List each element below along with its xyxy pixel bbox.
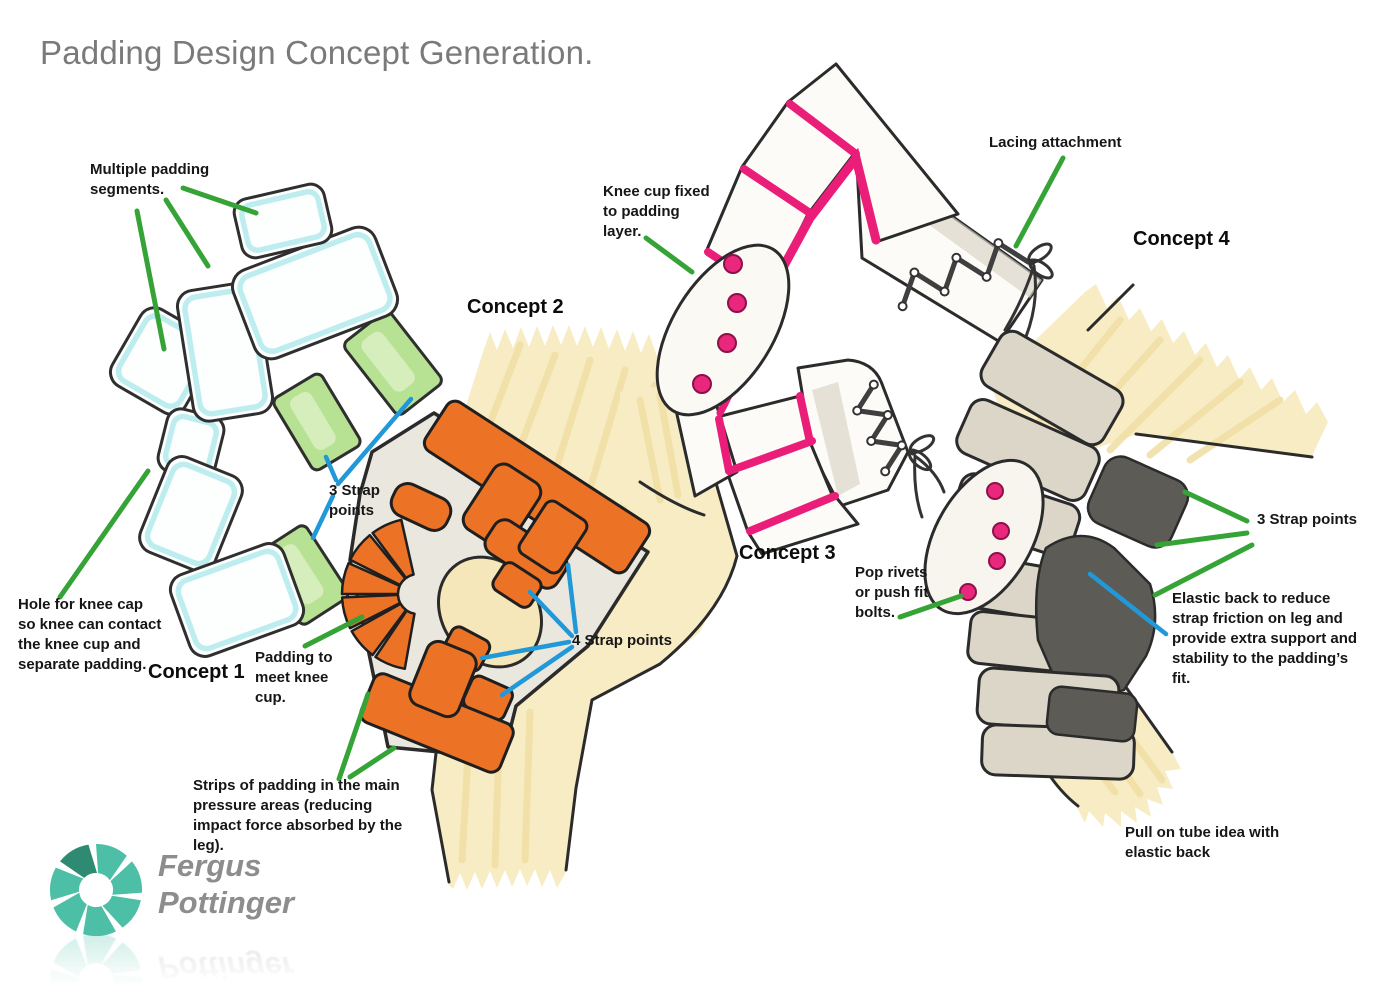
annotation-pull-on-tube: Pull on tube idea with elastic back [1125, 823, 1279, 863]
annotation-hole-for-knee-cap: Hole for knee cap so knee can contact th… [18, 595, 161, 675]
logo-main: Fergus Pottinger [46, 840, 294, 940]
concept4-elastic-lower [1046, 686, 1139, 743]
logo: Fergus Pottinger Fergus Pottinger [46, 840, 294, 990]
logo-name: Fergus Pottinger [158, 840, 294, 921]
annotation-elastic-back: Elastic back to reduce strap friction on… [1172, 589, 1357, 689]
logo-last-name: Pottinger [158, 885, 294, 922]
annotation-pop-rivets: Pop rivets or push fit bolts. [855, 563, 928, 623]
aperture-icon-reflection [46, 930, 146, 990]
lace-bow-bottom [906, 432, 944, 517]
annotation-padding-to-meet: Padding to meet knee cup. [255, 648, 333, 708]
logo-first-name: Fergus [158, 848, 294, 885]
annotation-strap-points-c4: 3 Strap points [1257, 510, 1357, 530]
annotation-strap-points-c2: 4 Strap points [572, 631, 672, 651]
annotation-strap-points-c1: 3 Strap points [329, 481, 380, 521]
concept4-sketch [900, 284, 1328, 827]
design-sheet: Padding Design Concept Generation. Multi… [0, 0, 1400, 990]
concept3-label: Concept 3 [739, 542, 836, 565]
page-title: Padding Design Concept Generation. [40, 34, 594, 72]
concept4-label: Concept 4 [1133, 228, 1230, 251]
logo-reflection: Fergus Pottinger [46, 930, 294, 990]
annotation-lacing-attachment: Lacing attachment [989, 133, 1122, 153]
logo-name-reflection: Fergus Pottinger [158, 949, 294, 990]
annotation-knee-cup-fixed: Knee cup fixed to padding layer. [603, 182, 710, 242]
concept2-label: Concept 2 [467, 296, 564, 319]
annotation-multiple-padding: Multiple padding segments. [90, 160, 209, 200]
concept1-label: Concept 1 [148, 661, 245, 684]
aperture-icon [46, 840, 146, 940]
